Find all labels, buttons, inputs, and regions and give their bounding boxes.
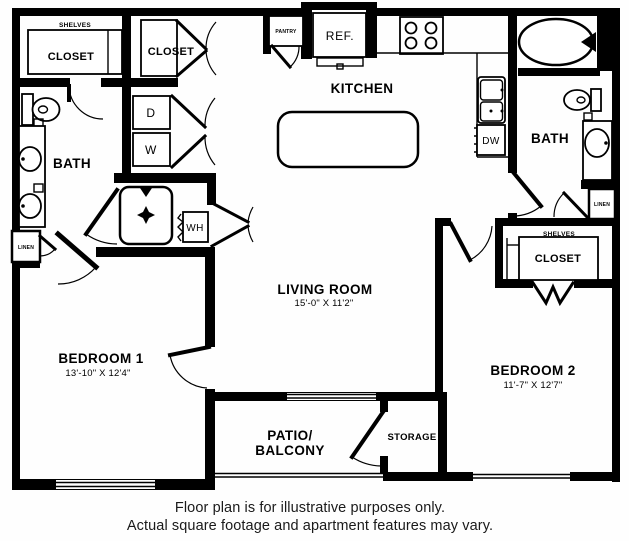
- windows-and-railings: [56, 393, 570, 489]
- closet-hall-label: CLOSET: [148, 46, 194, 58]
- kitchen-label: KITCHEN: [331, 81, 394, 96]
- shelves-left-label: SHELVES: [59, 22, 91, 29]
- floor-plan-svg: SHELVES CLOSET CLOSET PANTRY REF. KITCHE…: [0, 0, 629, 541]
- living-room-dims: 15'-0" X 11'2": [295, 298, 354, 309]
- bedroom1-label: BEDROOM 1: [58, 351, 143, 366]
- kitchen-island: [278, 112, 418, 167]
- dryer-label: D: [146, 106, 155, 120]
- linen-left-label: LINEN: [18, 245, 34, 251]
- washer-label: W: [145, 143, 157, 157]
- dishwasher-label: DW: [482, 136, 500, 147]
- disclaimer-line1: Floor plan is for illustrative purposes …: [175, 500, 445, 516]
- closet-left-label: CLOSET: [48, 51, 94, 63]
- shelves-right-label: SHELVES: [543, 231, 575, 238]
- pantry-label: PANTRY: [275, 29, 297, 35]
- toilet-left-tank: [22, 94, 33, 125]
- floor-plan-page: SHELVES CLOSET CLOSET PANTRY REF. KITCHE…: [0, 0, 629, 541]
- disclaimer-line2: Actual square footage and apartment feat…: [127, 518, 493, 534]
- bath-left-label: BATH: [53, 156, 91, 171]
- burner: [406, 23, 417, 34]
- water-heater-label: WH: [186, 223, 203, 234]
- burner: [426, 38, 437, 49]
- patio-label-line2: BALCONY: [255, 443, 325, 458]
- linen-right-label: LINEN: [594, 202, 610, 208]
- fixtures: [12, 13, 615, 280]
- burner: [426, 23, 437, 34]
- bedroom1-dims: 13'-10" X 12'4": [65, 368, 130, 379]
- toilet-right-tank: [591, 89, 601, 111]
- toilet-left-bowl: [33, 98, 60, 121]
- refrigerator-label: REF.: [326, 29, 354, 43]
- living-room-label: LIVING ROOM: [277, 282, 372, 297]
- burner: [406, 38, 417, 49]
- disclaimer: Floor plan is for illustrative purposes …: [127, 500, 493, 534]
- storage-label: STORAGE: [388, 432, 437, 443]
- bedroom2-label: BEDROOM 2: [490, 363, 575, 378]
- bedroom2-dims: 11'-7" X 12'7": [504, 380, 563, 391]
- bath-right-label: BATH: [531, 131, 569, 146]
- stove: [400, 17, 443, 54]
- patio-label-line1: PATIO/: [267, 428, 312, 443]
- closet-bed2-label: CLOSET: [535, 253, 581, 265]
